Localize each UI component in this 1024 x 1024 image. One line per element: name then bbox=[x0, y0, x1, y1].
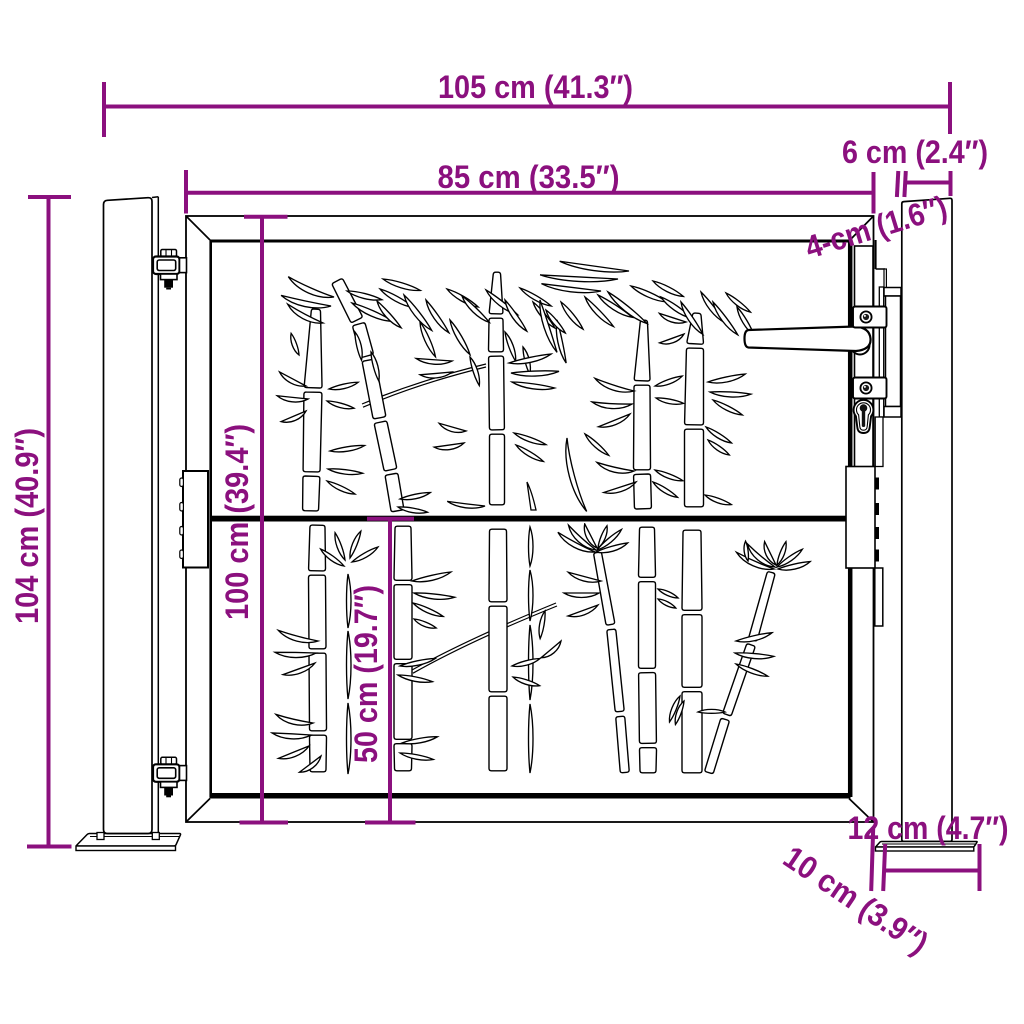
svg-text:100 cm (39.4″): 100 cm (39.4″) bbox=[219, 424, 255, 620]
svg-text:85 cm (33.5″): 85 cm (33.5″) bbox=[438, 159, 620, 195]
svg-text:104 cm (40.9″): 104 cm (40.9″) bbox=[9, 428, 45, 624]
svg-text:6 cm (2.4″): 6 cm (2.4″) bbox=[842, 134, 988, 170]
svg-text:12 cm (4.7″): 12 cm (4.7″) bbox=[848, 810, 1009, 846]
svg-text:50 cm (19.7″): 50 cm (19.7″) bbox=[348, 585, 384, 763]
svg-text:105 cm (41.3″): 105 cm (41.3″) bbox=[438, 69, 633, 105]
